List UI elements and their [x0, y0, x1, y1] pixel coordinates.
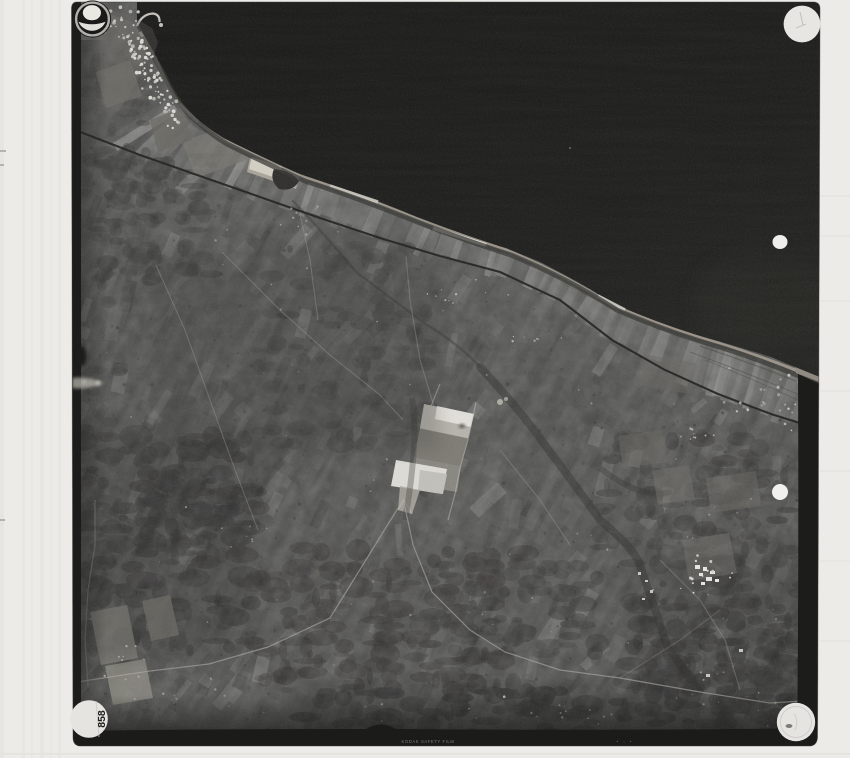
svg-text:KODAK SAFETY FILM: KODAK SAFETY FILM: [402, 739, 455, 744]
svg-text:858: 858: [96, 710, 108, 728]
svg-text:• ◦ •: • ◦ •: [617, 739, 634, 744]
